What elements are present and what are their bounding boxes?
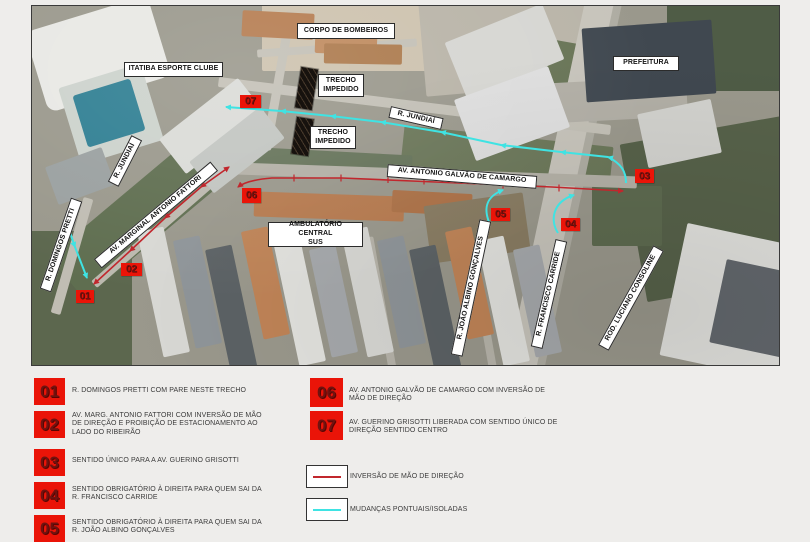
terrain-patch	[31, 5, 171, 113]
label-itatiba-esporte-clube: ITATIBA ESPORTE CLUBE	[124, 62, 223, 77]
legend-text-07: AV. GUERINO GRISOTTI LIBERADA COM SENTID…	[349, 419, 564, 436]
legend-key-red-swatch	[306, 465, 348, 488]
legend-text-03: SENTIDO ÚNICO PARA A AV. GUERINO GRISOTT…	[72, 457, 307, 465]
terrain-patch	[667, 5, 780, 91]
terrain-patch	[637, 99, 722, 168]
terrain-patch	[445, 5, 565, 98]
terrain-patch	[262, 11, 295, 150]
label-trecho-impedido-2: TRECHO IMPEDIDO	[310, 126, 356, 149]
cyan-line-sample	[313, 509, 341, 511]
terrain-patch	[377, 235, 426, 348]
map-marker-04: 04	[561, 218, 580, 231]
terrain-patch	[218, 77, 611, 135]
terrain-patch	[501, 76, 688, 126]
legend-key-red-label: INVERSÃO DE MÃO DE DIREÇÃO	[350, 473, 464, 480]
legend-text-01: R. DOMINGOS PRETTI COM PARE NESTE TRECHO	[72, 387, 307, 395]
map-marker-05: 05	[491, 208, 510, 221]
legend-key-cyan-swatch	[306, 498, 348, 521]
map-marker-01: 01	[76, 290, 94, 303]
legend-number-04: 04	[34, 482, 65, 509]
legend-text-02: AV. MARG. ANTONIO FATTORI COM INVERSÃO D…	[72, 412, 272, 437]
label-prefeitura: PREFEITURA	[613, 56, 679, 71]
map-marker-06: 06	[242, 188, 261, 203]
legend-number-06: 06	[310, 378, 343, 407]
terrain-patch	[592, 186, 662, 246]
legend-number-03: 03	[34, 449, 65, 476]
terrain-patch	[273, 236, 326, 366]
legend-number-07: 07	[310, 411, 343, 440]
terrain-patch	[529, 38, 584, 134]
terrain-patch	[418, 5, 606, 97]
legend-number-01: 01	[34, 378, 65, 405]
legend-number-02: 02	[34, 411, 65, 438]
map-marker-07: 07	[240, 95, 261, 108]
legend-text-05: SENTIDO OBRIGATÓRIO À DIREITA PARA QUEM …	[72, 519, 282, 536]
terrain-patch	[709, 259, 780, 362]
map-marker-02: 02	[121, 263, 142, 276]
legend-text-06: AV. ANTONIO GALVÃO DE CAMARGO COM INVERS…	[349, 387, 559, 404]
terrain-patch	[454, 66, 570, 161]
map-figure: CORPO DE BOMBEIROS ITATIBA ESPORTE CLUBE…	[31, 5, 780, 366]
terrain-patch	[137, 227, 190, 358]
terrain-patch	[173, 235, 222, 348]
terrain-patch	[205, 245, 258, 366]
terrain-patch	[159, 78, 265, 174]
legend-panel: 01 R. DOMINGOS PRETTI COM PARE NESTE TRE…	[0, 365, 810, 540]
map-marker-03: 03	[635, 169, 654, 183]
terrain-patch	[45, 147, 115, 205]
terrain-patch	[659, 223, 780, 366]
terrain-patch	[257, 38, 417, 57]
terrain-patch	[324, 43, 402, 64]
terrain-patch	[254, 191, 405, 221]
red-line-sample	[313, 476, 341, 478]
label-ambulatorio-central-sus: AMBULATÓRIO CENTRAL SUS	[268, 222, 363, 247]
terrain-patch	[477, 236, 530, 366]
legend-number-05: 05	[34, 515, 65, 542]
label-corpo-de-bombeiros: CORPO DE BOMBEIROS	[297, 23, 395, 39]
legend-text-04: SENTIDO OBRIGATÓRIO À DIREITA PARA QUEM …	[72, 486, 282, 503]
terrain-patch	[58, 63, 164, 165]
terrain-patch	[365, 236, 396, 366]
terrain-patch	[309, 244, 358, 357]
label-trecho-impedido-1: TRECHO IMPEDIDO	[318, 74, 364, 97]
legend-key-cyan-label: MUDANÇAS PONTUAIS/ISOLADAS	[350, 506, 467, 513]
terrain-patch	[391, 190, 472, 216]
